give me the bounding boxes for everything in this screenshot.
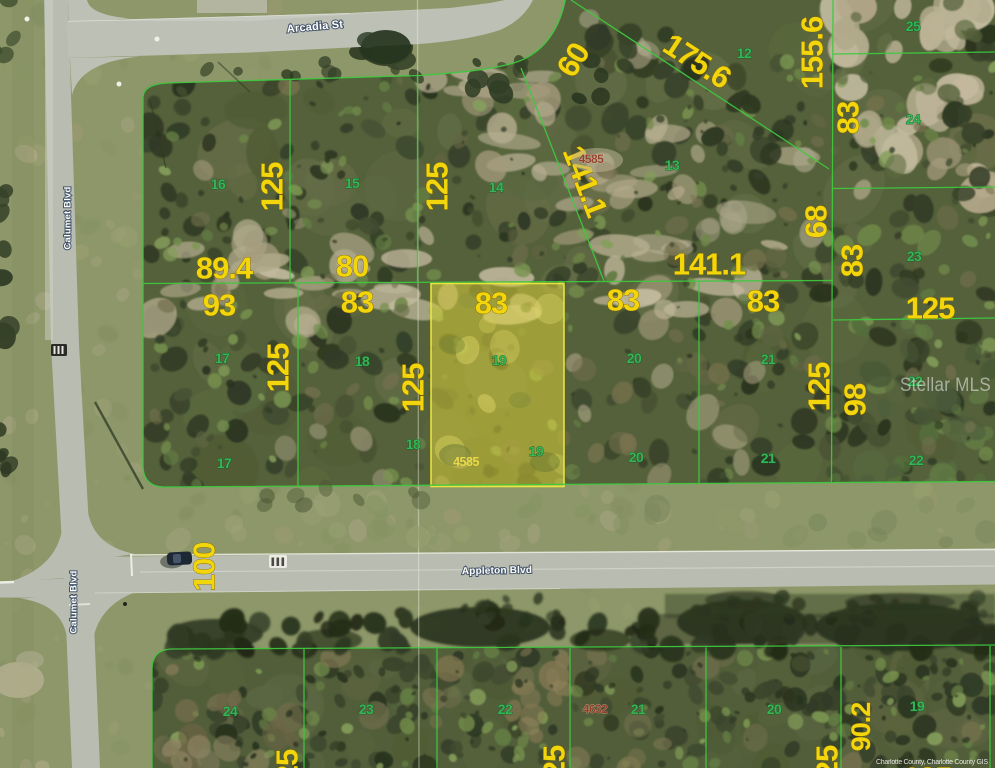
svg-text:19: 19 <box>529 443 544 459</box>
svg-text:83: 83 <box>831 101 866 134</box>
svg-text:Appleton Blvd: Appleton Blvd <box>462 565 533 577</box>
svg-text:16: 16 <box>211 176 226 192</box>
svg-text:125: 125 <box>906 291 955 326</box>
svg-text:25: 25 <box>537 745 572 768</box>
svg-text:23: 23 <box>359 701 374 717</box>
svg-text:14: 14 <box>489 179 504 195</box>
svg-text:21: 21 <box>761 450 776 466</box>
svg-text:83: 83 <box>607 283 640 318</box>
svg-text:18: 18 <box>406 436 421 452</box>
svg-text:22: 22 <box>909 452 924 468</box>
svg-text:21: 21 <box>761 351 776 367</box>
svg-text:89.4: 89.4 <box>196 251 254 286</box>
svg-text:13: 13 <box>665 157 680 173</box>
svg-text:25: 25 <box>270 749 305 768</box>
svg-text:83: 83 <box>747 284 780 319</box>
svg-text:19: 19 <box>492 352 507 368</box>
svg-text:125: 125 <box>396 363 431 412</box>
svg-text:Stellar MLS: Stellar MLS <box>900 374 991 396</box>
svg-text:100: 100 <box>187 543 222 592</box>
svg-text:125: 125 <box>255 162 290 211</box>
svg-text:25: 25 <box>906 18 921 34</box>
svg-text:125: 125 <box>420 162 455 211</box>
svg-text:80: 80 <box>336 249 368 284</box>
svg-text:4585: 4585 <box>579 152 605 166</box>
svg-text:Charlotte County, Charlotte Co: Charlotte County, Charlotte County GIS <box>876 759 988 766</box>
svg-text:21: 21 <box>631 701 646 717</box>
svg-text:24: 24 <box>223 703 238 719</box>
svg-text:83: 83 <box>475 286 508 321</box>
svg-text:155.6: 155.6 <box>795 16 830 89</box>
svg-text:12: 12 <box>737 45 752 61</box>
svg-text:19: 19 <box>910 698 925 714</box>
svg-text:15: 15 <box>345 175 360 191</box>
svg-text:18: 18 <box>355 353 370 369</box>
svg-text:20: 20 <box>627 350 642 366</box>
svg-text:17: 17 <box>217 455 232 471</box>
svg-text:24: 24 <box>906 111 921 127</box>
svg-text:25: 25 <box>810 745 845 768</box>
svg-text:141.1: 141.1 <box>673 247 746 282</box>
svg-text:90.2: 90.2 <box>846 703 876 752</box>
svg-text:125: 125 <box>261 343 296 392</box>
svg-text:20: 20 <box>629 449 644 465</box>
svg-text:93: 93 <box>203 288 236 323</box>
svg-text:23: 23 <box>907 248 922 264</box>
svg-text:Calumet Blvd: Calumet Blvd <box>69 570 80 633</box>
svg-text:98: 98 <box>838 383 873 416</box>
svg-text:125: 125 <box>802 362 837 411</box>
svg-text:Calumet Blvd: Calumet Blvd <box>63 186 74 249</box>
svg-text:68: 68 <box>799 205 834 238</box>
svg-text:83: 83 <box>341 285 374 320</box>
svg-text:4632: 4632 <box>583 702 609 716</box>
svg-text:22: 22 <box>498 701 513 717</box>
svg-text:20: 20 <box>767 701 782 717</box>
svg-text:17: 17 <box>215 350 230 366</box>
svg-text:83: 83 <box>835 244 870 277</box>
svg-text:4585: 4585 <box>453 455 479 469</box>
